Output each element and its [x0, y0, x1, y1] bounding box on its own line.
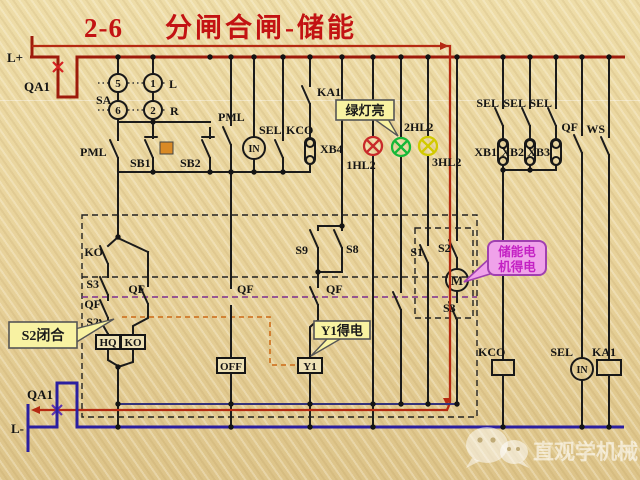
label-sel-r1: SEL	[476, 96, 499, 110]
label-xb3: XB3	[527, 145, 550, 159]
callout-green-lamp: 绿灯亮	[336, 100, 398, 136]
label-s1: S1	[410, 245, 423, 259]
label-qa1-bottom: QA1	[27, 387, 53, 402]
label-in-bot: IN	[576, 365, 588, 376]
lamp-2hl2	[392, 138, 410, 156]
circuit-canvas: L+ QA1 SA 5 1 6 2 L R PML SB1 SB2 PML SE…	[0, 0, 640, 480]
wechat-logo-icon	[466, 427, 529, 468]
label-l-minus: L-	[11, 421, 24, 436]
label-s2-right: S2	[438, 241, 451, 255]
callout-green-lamp-text: 绿灯亮	[345, 103, 384, 118]
lamp-1hl2	[364, 137, 382, 155]
label-s3-left: S3	[86, 277, 99, 291]
label-sa-5: 5	[115, 78, 121, 90]
label-sa-2: 2	[150, 105, 156, 117]
callout-motor-text-2: 机得电	[498, 259, 536, 274]
label-sa-r: R	[170, 104, 179, 118]
flow-arrow-right	[440, 42, 449, 50]
label-kco-coil: KCO	[478, 345, 505, 359]
label-s8: S8	[346, 242, 359, 256]
label-pml-mid: PML	[218, 110, 245, 124]
label-ka1-top: KA1	[317, 85, 341, 99]
ka1-coil	[597, 360, 621, 375]
xb4-pin-top	[306, 139, 314, 147]
label-3hl2: 3HL2	[432, 155, 461, 169]
xb4-pin-bottom	[306, 156, 314, 164]
label-sel-r2: SEL	[503, 96, 526, 110]
callout-y1-text: Y1得电	[321, 323, 363, 338]
label-sb2: SB2	[180, 156, 201, 170]
label-xb2: XB2	[501, 145, 524, 159]
label-y1: Y1	[303, 361, 316, 373]
label-off: OFF	[220, 361, 242, 373]
label-qf-a: QF	[84, 297, 101, 311]
label-sa-l: L	[169, 77, 177, 91]
callout-motor-text-1: 储能电	[497, 244, 536, 259]
label-sel-bot: SEL	[550, 345, 573, 359]
label-qf-right: QF	[561, 120, 578, 134]
label-2hl2: 2HL2	[404, 120, 433, 134]
kco-coil	[492, 360, 514, 375]
watermark-text: 直观学机械	[533, 440, 638, 464]
label-sel-r3: SEL	[529, 96, 552, 110]
callout-y1-energized: Y1得电	[311, 321, 370, 356]
orange-indicator-block	[160, 142, 173, 154]
label-1hl2: 1HL2	[346, 158, 375, 172]
label-sa-1: 1	[150, 78, 156, 90]
dashed-orange-path-to-y1	[122, 317, 296, 365]
label-qf-b: QF	[128, 282, 145, 296]
label-sb1: SB1	[130, 156, 151, 170]
label-s3-right: S3	[443, 301, 456, 315]
watermark: 直观学机械	[466, 427, 638, 468]
label-qa1-top: QA1	[24, 79, 50, 94]
label-motor: M	[451, 273, 463, 288]
label-xb1: XB1	[474, 145, 497, 159]
label-hq: HQ	[99, 337, 117, 349]
label-in-mid: IN	[248, 144, 260, 155]
label-xb4: XB4	[320, 142, 343, 156]
label-sel-mid: SEL	[259, 123, 282, 137]
label-sa-6: 6	[115, 105, 121, 117]
callout-s2-text: S2闭合	[22, 327, 66, 344]
label-ko-coil: KO	[124, 337, 142, 349]
label-l-plus: L+	[7, 50, 23, 65]
label-qf-mid: QF	[326, 282, 343, 296]
lamp-3hl2	[419, 137, 437, 155]
label-s9: S9	[295, 243, 308, 257]
label-ka1-coil: KA1	[592, 345, 616, 359]
label-pml-left: PML	[80, 145, 107, 159]
schematic-page: 2-6分闸合闸-储能	[0, 0, 640, 480]
label-ko-contact: KO	[84, 245, 103, 259]
label-ws: WS	[586, 122, 605, 136]
flow-arrow-left	[31, 406, 40, 414]
label-sa: SA	[96, 93, 112, 107]
label-kco-mid: KCO	[286, 123, 313, 137]
label-qf-off: QF	[237, 282, 254, 296]
